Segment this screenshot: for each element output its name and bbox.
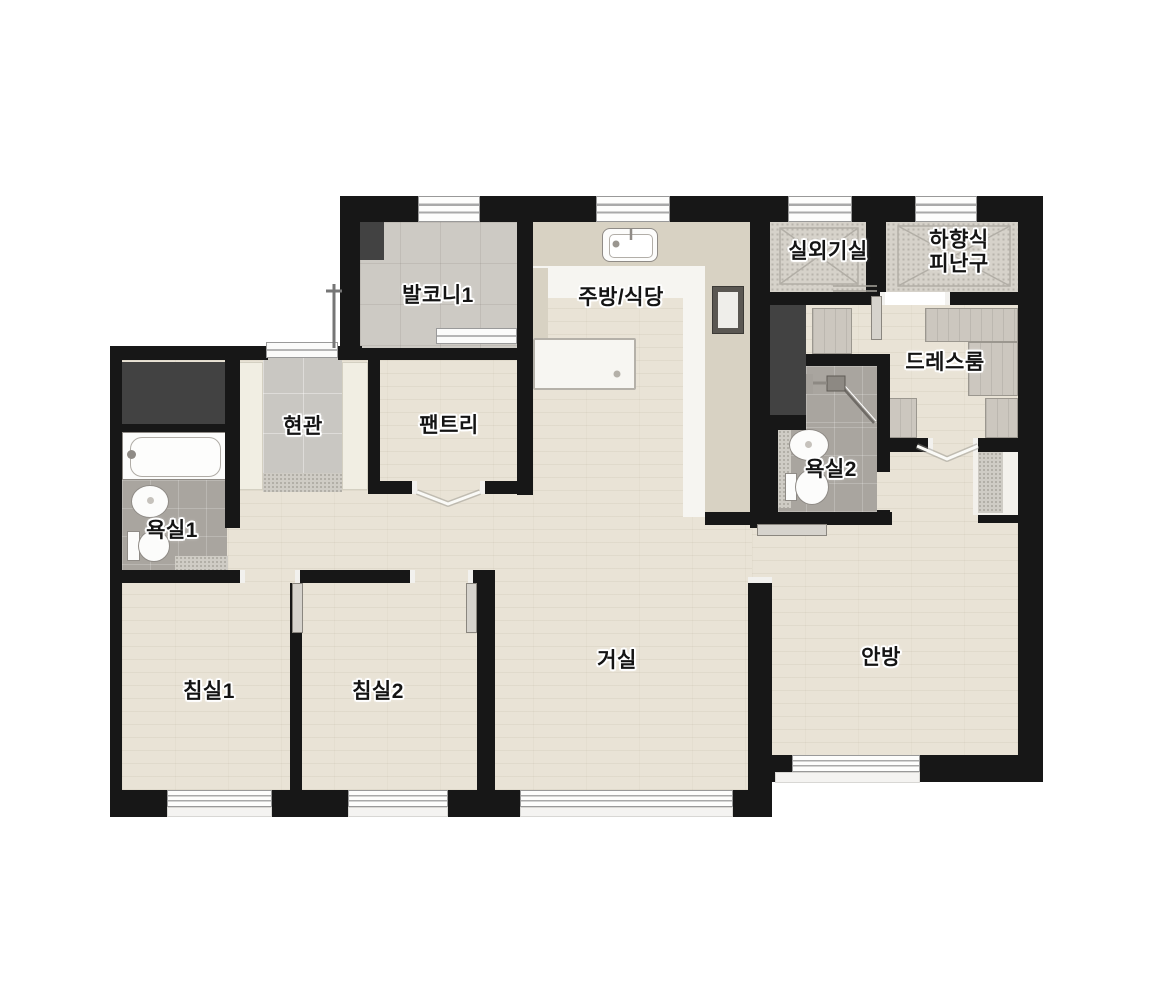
window-sill [348, 807, 448, 817]
kitchen-island [533, 338, 636, 390]
duct-shaft-left [122, 362, 227, 424]
room-label-bathroom1: 욕실1 [146, 519, 198, 543]
wall [295, 570, 415, 583]
bathroom2-basin-drain [805, 441, 812, 448]
window-escape-hatch [915, 196, 977, 222]
wall [920, 755, 1043, 782]
wall [973, 438, 1018, 452]
duct-shaft-balcony [360, 222, 384, 260]
wall-bathroom1-right [225, 360, 240, 528]
door-jamb [295, 570, 300, 583]
window-sill [775, 772, 920, 783]
master-sliding-door-leaf [757, 524, 827, 536]
room-label-dressroom: 드레스룸 [905, 351, 984, 375]
wall-bedroom2-living [477, 583, 495, 790]
wall [760, 418, 778, 512]
wall [110, 570, 245, 583]
window-sill [167, 807, 272, 817]
door-jamb [410, 570, 415, 583]
built-in-oven-door [718, 292, 738, 328]
balcony-sliding-door [436, 328, 517, 344]
room-label-bathroom2: 욕실2 [805, 458, 857, 482]
room-label-bedroom2: 침실2 [352, 680, 404, 704]
window-outdoor-unit [788, 196, 852, 222]
room-label-kitchen-dining: 주방/식당 [578, 286, 664, 310]
wall [448, 790, 520, 817]
duct-shaft-right [770, 305, 806, 415]
window-master [792, 755, 920, 772]
wall [110, 346, 268, 360]
dressroom-cabinet-doorright [985, 398, 1018, 438]
kitchen-worktop-strip-right [683, 298, 705, 517]
dressroom-cabinet-top [925, 308, 1018, 342]
wall [122, 424, 227, 432]
entrance-tile-floor [263, 353, 342, 473]
wall-pantry-top [342, 348, 517, 360]
wall-utility-divider [866, 196, 886, 292]
door-jamb [412, 481, 417, 494]
wall [110, 790, 167, 817]
door-jamb [240, 570, 245, 583]
entrance-door [266, 342, 338, 358]
window-sill [520, 807, 733, 817]
wall [888, 438, 933, 452]
wall-bathroom2-right [877, 354, 890, 472]
wall [368, 481, 417, 494]
wall [978, 515, 1018, 523]
door-jamb [480, 481, 485, 494]
master-niche-mat [978, 452, 1003, 513]
door-jamb [468, 570, 473, 583]
entrance-closet-left [238, 362, 263, 490]
bedroom1-door-leaf [292, 583, 303, 633]
wall-pantry-left [368, 360, 380, 481]
wall [752, 292, 885, 305]
dressroom-cabinet-doorleft [888, 398, 917, 438]
room-label-master: 안방 [861, 646, 901, 670]
room-label-bedroom1: 침실1 [183, 680, 235, 704]
bedroom2-door-leaf [466, 583, 477, 633]
kitchen-sink-basin [609, 234, 653, 258]
wall-living-master [748, 578, 772, 817]
room-label-outdoor-unit: 실외기실 [788, 240, 867, 264]
dressroom-door-leaf [871, 296, 882, 340]
wall-cap [748, 577, 772, 583]
window-bedroom1 [167, 790, 272, 807]
bathroom1-basin-drain [147, 497, 154, 504]
dressroom-cabinet-topleft [812, 308, 852, 354]
wall-outer-right [1018, 196, 1043, 782]
bathtub-inner [130, 437, 221, 477]
wall [945, 292, 1018, 305]
wall [670, 196, 788, 222]
wall [272, 790, 348, 817]
window-living [520, 790, 733, 807]
room-label-escape-hatch: 하향식 피난구 [929, 228, 988, 275]
wall-balcony-kitchen [517, 196, 533, 495]
room-label-pantry: 팬트리 [419, 414, 478, 438]
window-kitchen [596, 196, 670, 222]
bathtub-faucet [127, 450, 136, 459]
window-bedroom2 [348, 790, 448, 807]
entrance-closet-right [342, 362, 368, 490]
door-jamb [945, 292, 950, 305]
room-label-living: 거실 [597, 649, 637, 673]
kitchen-counter-left-return [533, 268, 548, 338]
door-jamb [928, 438, 933, 452]
room-label-entrance: 현관 [283, 415, 323, 439]
door-jamb [973, 438, 978, 452]
wall [480, 196, 596, 222]
window-balcony [418, 196, 480, 222]
wall-balcony-left [340, 196, 360, 348]
wall [480, 481, 533, 494]
room-label-balcony1: 발코니1 [402, 284, 474, 308]
floor-plan: 발코니1 주방/식당 실외기실 하향식 피난구 드레스룸 현관 팬트리 욕실1 … [0, 0, 1160, 1000]
bathroom1-door-threshold [175, 556, 228, 570]
entrance-threshold [263, 473, 342, 492]
bathroom2-tile-upper [806, 366, 877, 427]
